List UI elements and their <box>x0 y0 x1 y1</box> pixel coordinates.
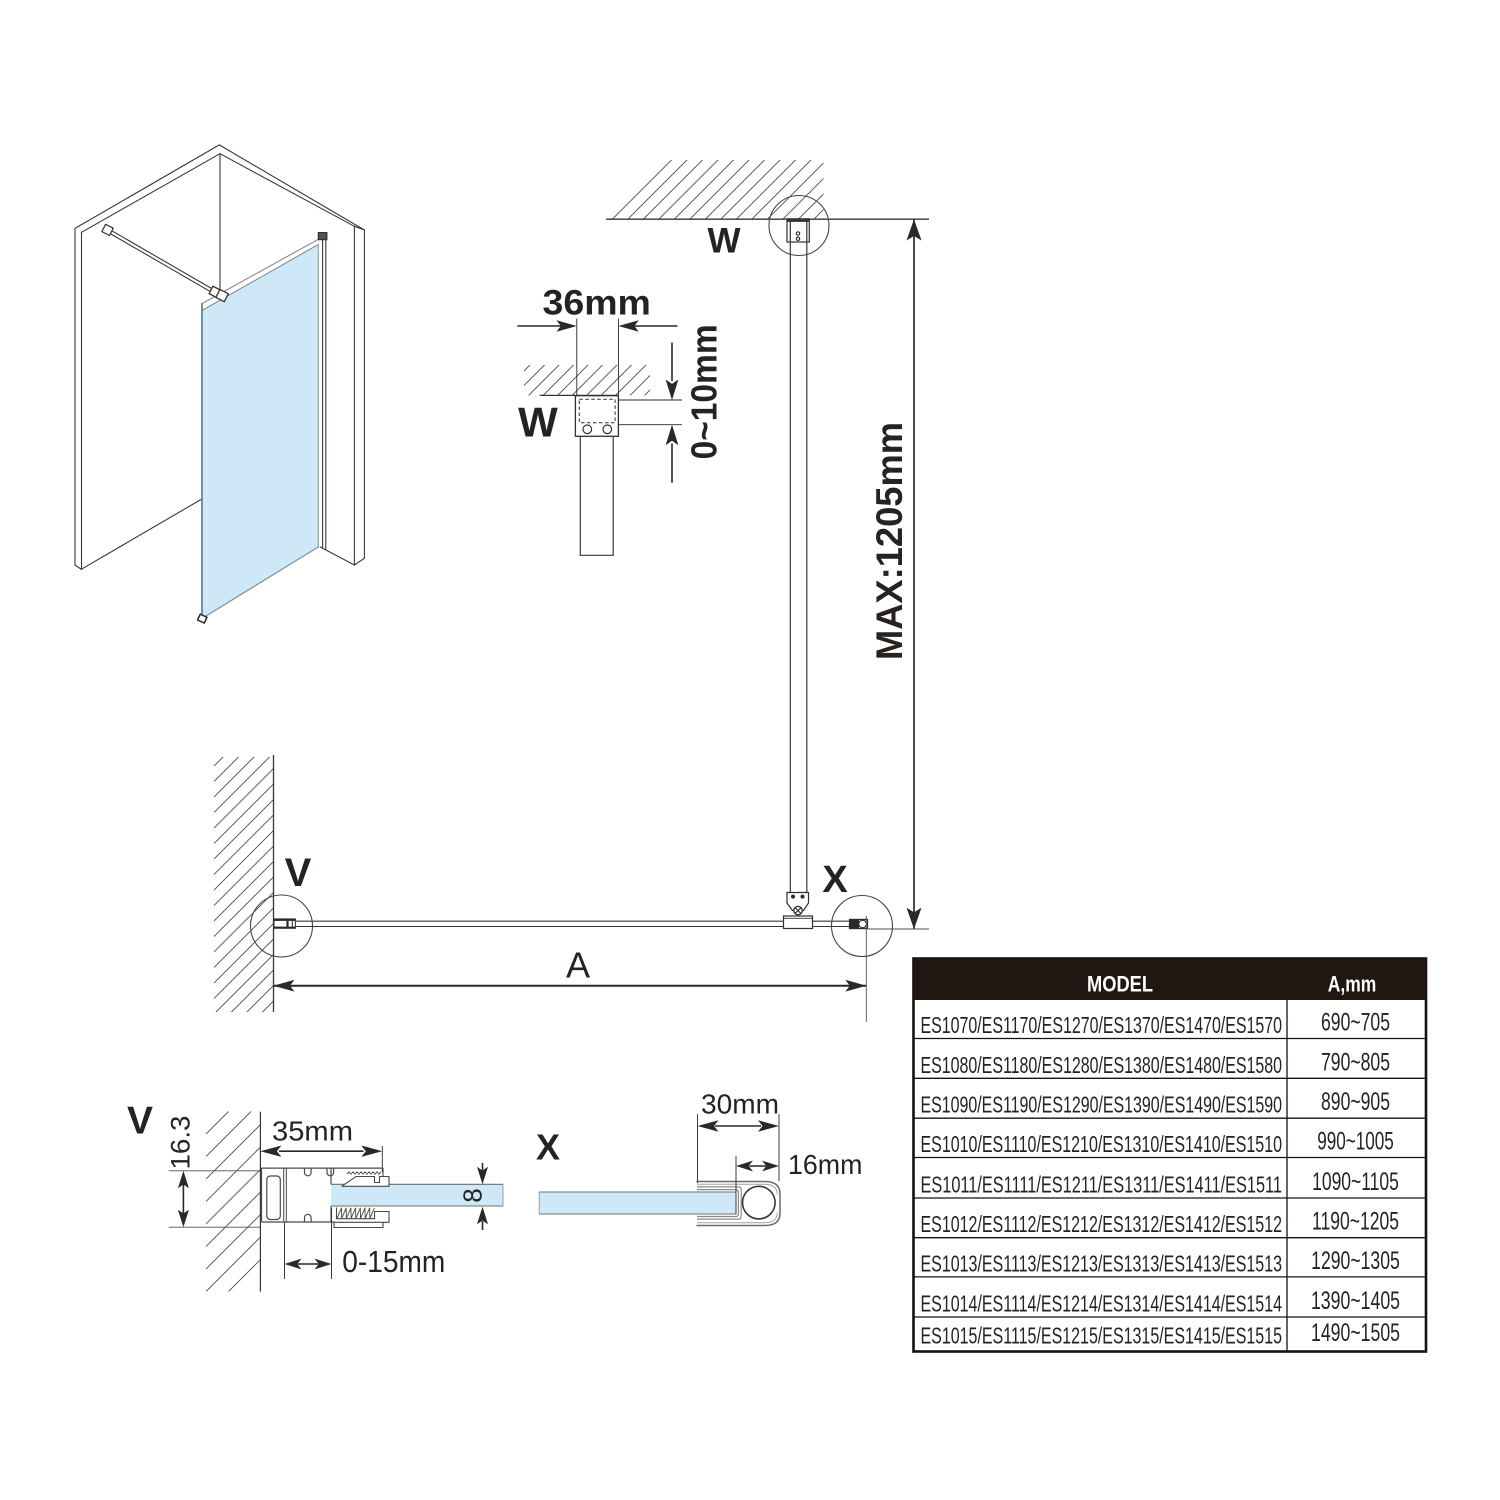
svg-text:1290~1305: 1290~1305 <box>1311 1247 1400 1275</box>
svg-text:990~1005: 990~1005 <box>1317 1128 1394 1156</box>
svg-text:36mm: 36mm <box>543 284 651 323</box>
svg-text:X: X <box>822 859 848 901</box>
svg-text:0~10mm: 0~10mm <box>684 324 725 459</box>
svg-text:8: 8 <box>458 1188 488 1202</box>
svg-text:A,mm: A,mm <box>1328 972 1377 997</box>
svg-text:ES1011/ES1111/ES1211/ES1311/ES: ES1011/ES1111/ES1211/ES1311/ES1411/ES151… <box>921 1172 1283 1198</box>
svg-text:16.3: 16.3 <box>166 1116 196 1170</box>
svg-text:X: X <box>536 1127 560 1168</box>
svg-text:ES1070/ES1170/ES1270/ES1370/ES: ES1070/ES1170/ES1270/ES1370/ES1470/ES157… <box>921 1012 1283 1038</box>
svg-text:1090~1105: 1090~1105 <box>1312 1168 1399 1196</box>
svg-text:ES1013/ES1113/ES1213/ES1313/ES: ES1013/ES1113/ES1213/ES1313/ES1413/ES151… <box>921 1250 1283 1276</box>
svg-text:V: V <box>127 1100 153 1143</box>
svg-text:V: V <box>285 851 312 895</box>
svg-text:1490~1505: 1490~1505 <box>1311 1319 1400 1347</box>
svg-text:ES1090/ES1190/ES1290/ES1390/ES: ES1090/ES1190/ES1290/ES1390/ES1490/ES159… <box>921 1092 1283 1118</box>
svg-text:ES1010/ES1110/ES1210/ES1310/ES: ES1010/ES1110/ES1210/ES1310/ES1410/ES151… <box>921 1131 1283 1157</box>
svg-text:W: W <box>518 398 558 445</box>
svg-text:ES1012/ES1112/ES1212/ES1312/ES: ES1012/ES1112/ES1212/ES1312/ES1412/ES151… <box>921 1211 1283 1237</box>
svg-text:ES1015/ES1115/ES1215/ES1315/ES: ES1015/ES1115/ES1215/ES1315/ES1415/ES151… <box>921 1323 1283 1349</box>
svg-text:MODEL: MODEL <box>1087 972 1153 997</box>
svg-text:16mm: 16mm <box>788 1149 862 1180</box>
svg-text:1390~1405: 1390~1405 <box>1311 1287 1400 1315</box>
svg-text:890~905: 890~905 <box>1321 1088 1390 1116</box>
svg-text:790~805: 790~805 <box>1321 1048 1390 1076</box>
svg-text:35mm: 35mm <box>272 1116 353 1147</box>
svg-text:MAX:1205mm: MAX:1205mm <box>869 422 910 660</box>
svg-text:0-15mm: 0-15mm <box>342 1244 445 1279</box>
svg-text:ES1080/ES1180/ES1280/ES1380/ES: ES1080/ES1180/ES1280/ES1380/ES1480/ES158… <box>921 1052 1283 1078</box>
svg-text:A: A <box>566 945 590 986</box>
svg-text:1190~1205: 1190~1205 <box>1312 1208 1399 1236</box>
svg-text:690~705: 690~705 <box>1321 1009 1390 1037</box>
svg-text:ES1014/ES1114/ES1214/ES1314/ES: ES1014/ES1114/ES1214/ES1314/ES1414/ES151… <box>921 1291 1283 1317</box>
svg-text:30mm: 30mm <box>701 1089 779 1120</box>
svg-text:W: W <box>707 222 740 261</box>
